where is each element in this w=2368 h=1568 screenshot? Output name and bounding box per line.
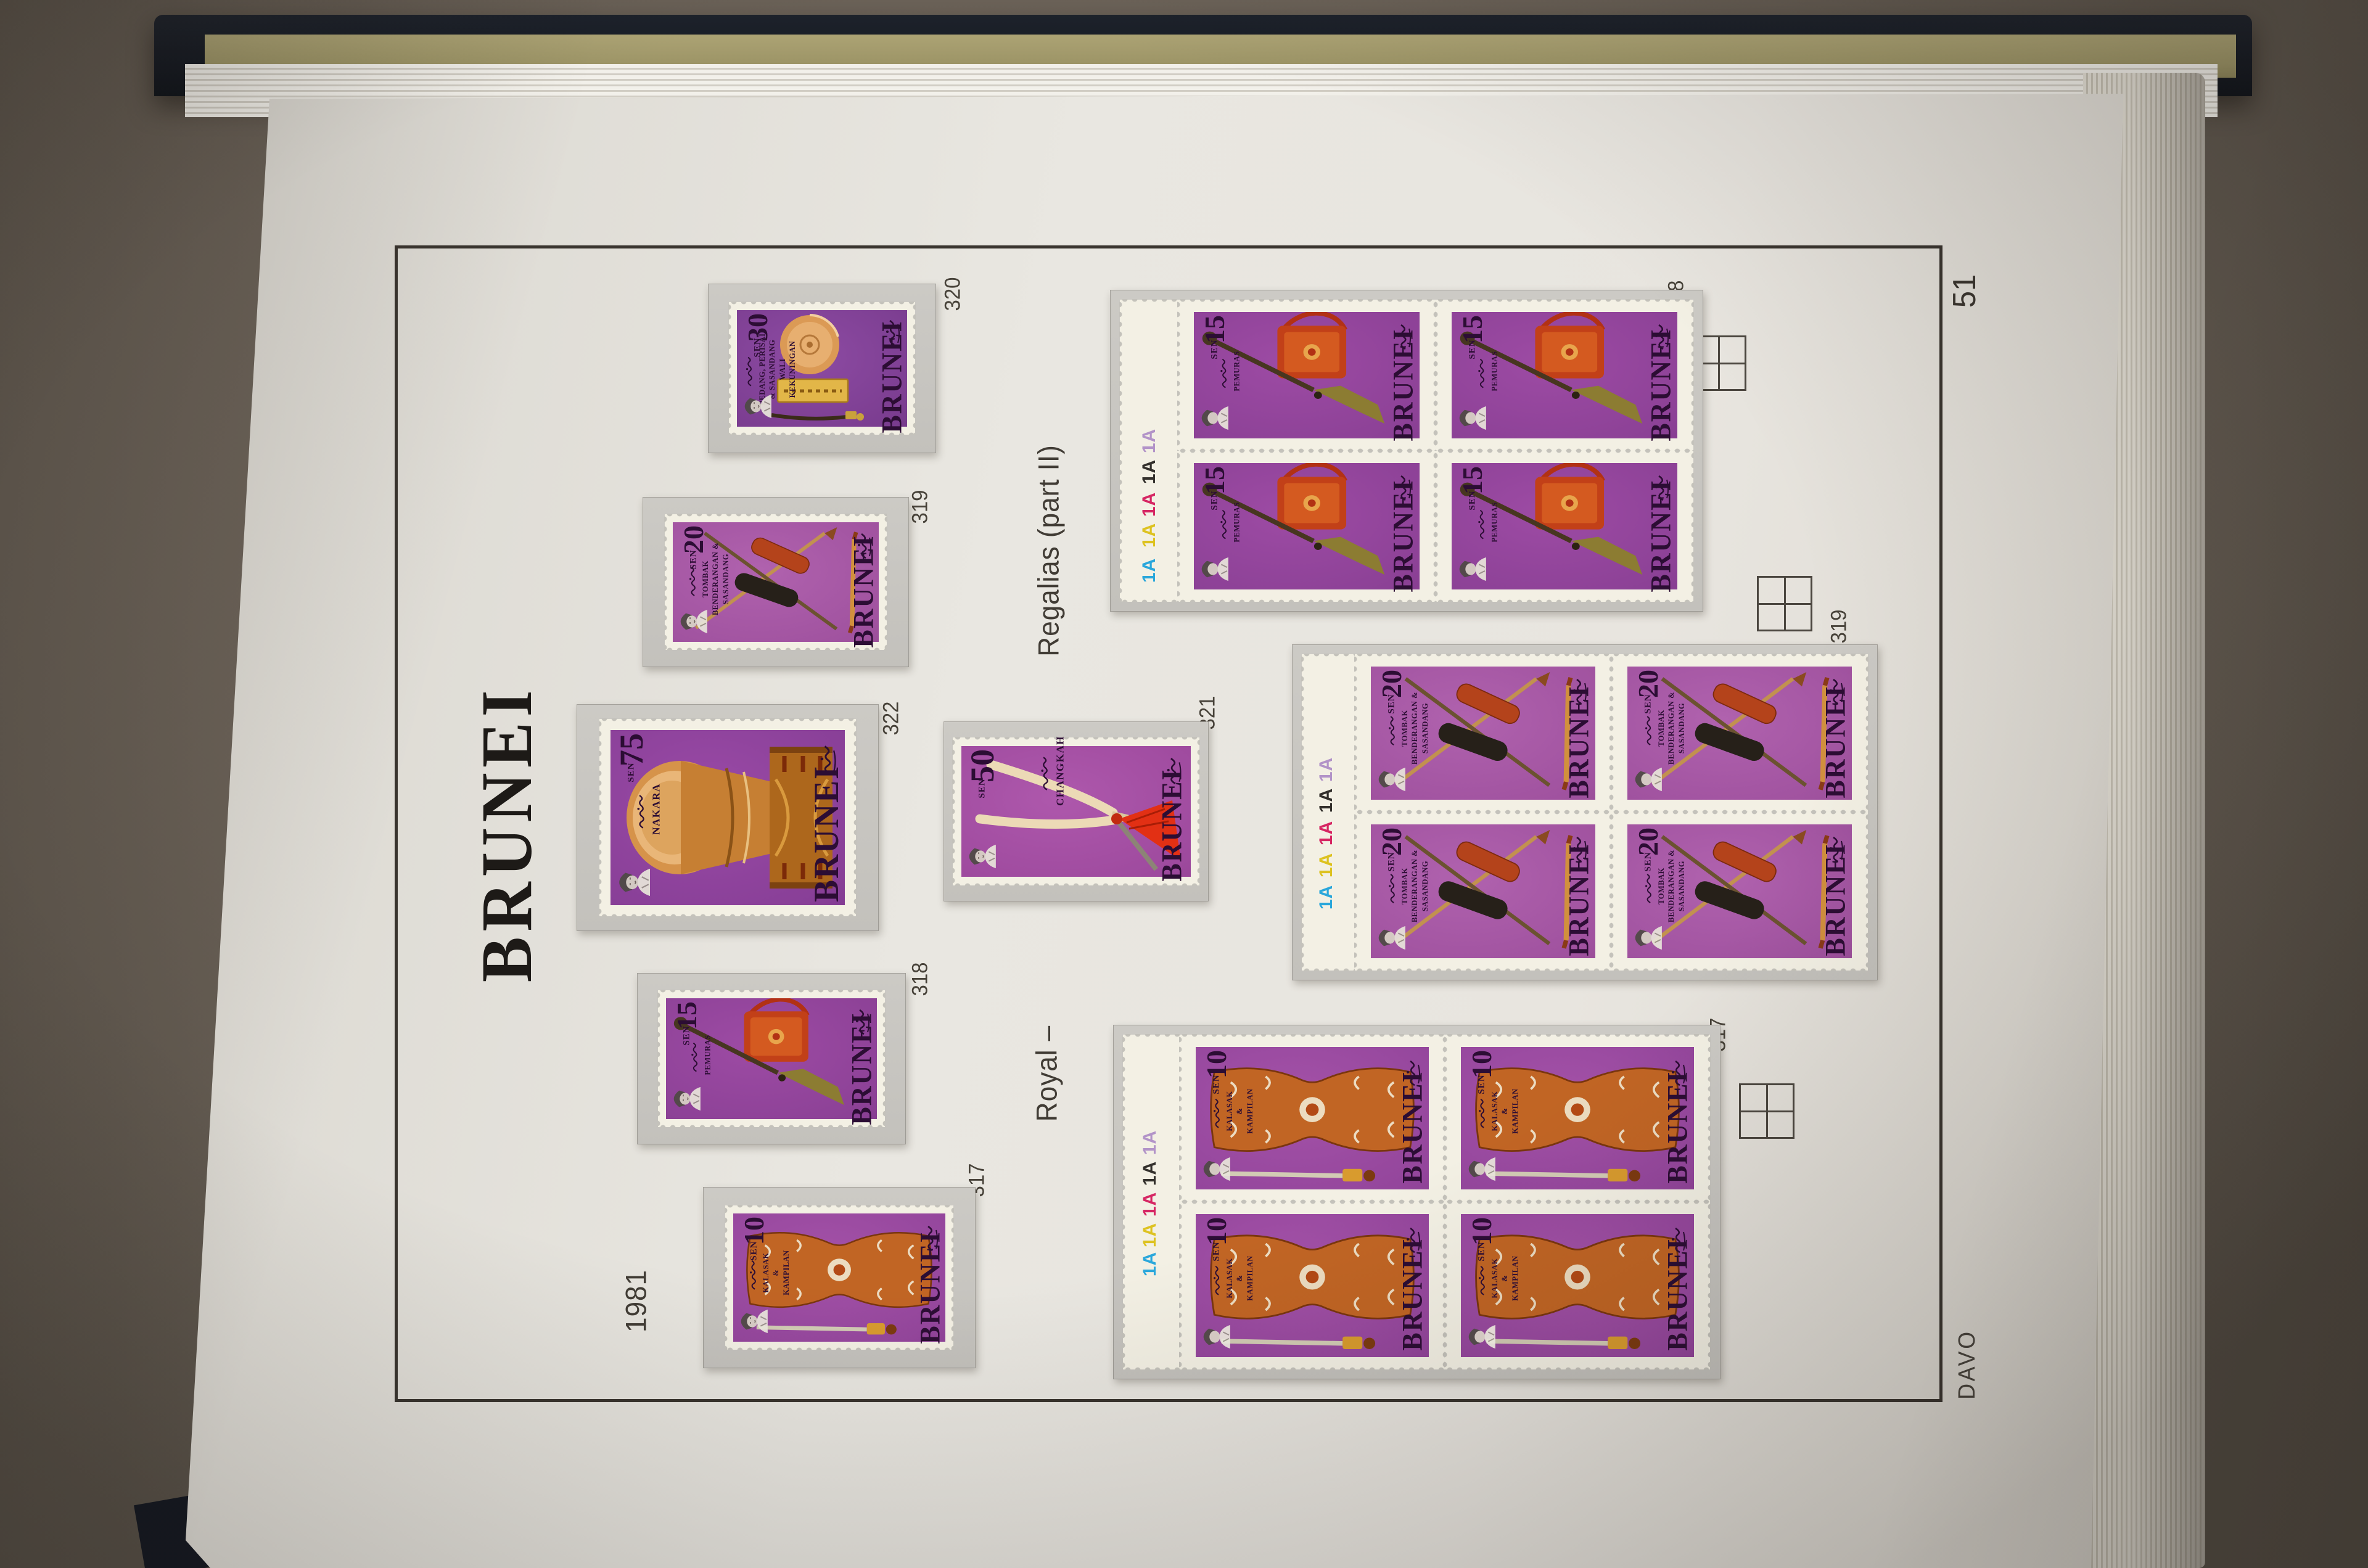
caption-line: BENDERANGAN & xyxy=(1410,692,1420,765)
block-stamp-319: 20SEN BRUNEI TOMBAKBENDERANGAN &SASANDAN… xyxy=(1355,812,1611,971)
stamp-mount: 15 SEN BRUNEI PEMURAS xyxy=(637,973,906,1144)
block-stamp-318: 15SEN BRUNEI PEMURAS xyxy=(1178,300,1436,451)
caption-line: SASANDANG xyxy=(1420,850,1430,922)
stamp-caption: PEMURAS xyxy=(691,1035,712,1075)
caption-line: TOMBAK xyxy=(1656,692,1666,765)
block-stamp-317: 10SEN BRUNEI KALASAK&KAMPILAN xyxy=(1445,1035,1710,1202)
caption-line: PEMURAS xyxy=(1489,351,1499,391)
block-mount: 1A 1A 1A 1A 1A 20SEN BRUNEI TOMBAKBENDER… xyxy=(1292,644,1878,980)
stamp-320-design: 30 SEN BRUNEI PEDANG, PERISAI & SASANDAN… xyxy=(737,310,907,427)
sultan-portrait xyxy=(738,392,771,421)
caption-line: & xyxy=(771,1250,781,1295)
block-mount: 1A 1A 1A 1A 1A 15SEN BRUNEI PEMURAS xyxy=(1110,290,1703,612)
stamp-mount: 20 SEN BRUNEI TOMBAK BENDERANGAN & SASAN… xyxy=(643,497,909,667)
plate-number-1A: 1A xyxy=(1317,853,1336,877)
block-stamp-317: 10SEN BRUNEI KALASAK&KAMPILAN xyxy=(1180,1202,1445,1369)
plate-number-1A: 1A xyxy=(1140,523,1159,548)
caption-line: KAMPILAN xyxy=(1510,1088,1520,1133)
brand-label: DAVO xyxy=(1955,1329,1979,1400)
stamp-mount: 10 SEN BRUNEI KALASAK & KAMPILAN xyxy=(703,1187,976,1368)
caption-line: WALI xyxy=(778,333,787,405)
stamp-318-design: 15 SEN BRUNEI PEMURAS xyxy=(666,998,877,1119)
stamp-319: 20 SEN BRUNEI TOMBAK BENDERANGAN & SASAN… xyxy=(665,514,887,650)
caption-line: & xyxy=(1500,1088,1510,1133)
catalog-number-319: 319 xyxy=(910,490,931,524)
sheet-selvage: 1A 1A 1A 1A 1A xyxy=(1302,654,1355,971)
sultan-portrait xyxy=(612,866,650,899)
caption-line: & xyxy=(1500,1255,1510,1300)
value-unit: SEN xyxy=(1468,490,1478,510)
arabic-script-icon xyxy=(857,532,871,560)
caption-line: TOMBAK xyxy=(1400,692,1410,765)
caption-line: KEKUNINGAN xyxy=(787,333,797,405)
arabic-script-icon xyxy=(885,318,900,347)
value-number: 75 xyxy=(615,733,648,766)
block-of-four-icon xyxy=(1757,576,1812,631)
plate-number-1A: 1A xyxy=(1141,1192,1159,1217)
plate-number-1A: 1A xyxy=(1141,1130,1159,1155)
caption-line: BENDERANGAN & xyxy=(710,543,720,615)
series-caption-lower: Royal – xyxy=(1032,1025,1061,1122)
value-unit: SEN xyxy=(1211,339,1220,359)
plate-number-1A: 1A xyxy=(1141,1161,1159,1186)
caption-line: TOMBAK xyxy=(1656,850,1666,922)
caption-line: PEMURAS xyxy=(1231,351,1241,391)
caption-line: KALASAK xyxy=(1225,1255,1235,1300)
stamp-country: BRUNEI xyxy=(809,765,844,902)
block-stamp-318: 15SEN BRUNEI PEMURAS xyxy=(1436,300,1693,451)
catalog-number-block-319: 319 xyxy=(1828,610,1850,644)
stamp-country: BRUNEI xyxy=(1399,1070,1427,1183)
caption-line: & xyxy=(1235,1088,1244,1133)
caption-line: PEMURAS xyxy=(1231,502,1241,542)
block-of-four-icon xyxy=(1739,1083,1794,1139)
caption-line: PEMURAS xyxy=(1489,502,1499,542)
arabic-script-icon xyxy=(819,744,836,776)
plate-number-1A: 1A xyxy=(1140,429,1159,453)
block-stamp-317: 10SEN BRUNEI KALASAK&KAMPILAN xyxy=(1445,1202,1710,1369)
caption-line: PEMURAS xyxy=(702,1035,712,1075)
plate-number-1A: 1A xyxy=(1140,459,1159,484)
value-unit: SEN xyxy=(1211,490,1220,510)
caption-line: SASANDANG xyxy=(1677,692,1687,765)
arabic-script-icon xyxy=(923,1224,938,1252)
stamp-318: 15 SEN BRUNEI PEMURAS xyxy=(658,990,885,1127)
stamp-317-design: 10 SEN BRUNEI KALASAK & KAMPILAN xyxy=(733,1213,945,1342)
stamp-317: 10 SEN BRUNEI KALASAK & KAMPILAN xyxy=(725,1205,953,1350)
plate-number-1A: 1A xyxy=(1317,821,1336,845)
stamp-322-design: 75 SEN BRUNEI NAKARA xyxy=(610,730,845,905)
stamp-caption: KALASAK & KAMPILAN xyxy=(749,1250,791,1295)
year-label: 1981 xyxy=(622,1270,651,1332)
caption-line: BENDERANGAN & xyxy=(1410,850,1420,922)
arabic-script-icon xyxy=(1165,756,1182,786)
caption-line: KALASAK xyxy=(761,1250,771,1295)
stamp-321-design: 50 SEN BRUNEI CHANGKAH xyxy=(961,746,1191,877)
stamp-caption: CHANGKAH xyxy=(1040,736,1067,806)
stamp-country: BRUNEI xyxy=(1399,1238,1427,1350)
caption-line: SASANDANG xyxy=(721,543,731,615)
sultan-portrait xyxy=(667,1085,701,1113)
caption-line: & xyxy=(1235,1255,1244,1300)
caption-line: NAKARA xyxy=(649,783,663,835)
stamp-mount: 75 SEN BRUNEI NAKARA xyxy=(577,704,879,931)
sultan-portrait xyxy=(734,1307,768,1336)
stamp-322: 75 SEN BRUNEI NAKARA xyxy=(599,719,856,916)
value-unit: SEN xyxy=(683,1025,692,1045)
stamp-321: 50 SEN BRUNEI CHANGKAH xyxy=(953,737,1199,885)
plate-number-1A: 1A xyxy=(1317,788,1336,813)
caption-line: KALASAK xyxy=(1490,1088,1500,1133)
photo-scene: BRUNEI Regalias (part II) Royal – 1981 5… xyxy=(0,0,2368,1568)
caption-line: SASANDANG xyxy=(1677,850,1687,922)
sultan-portrait xyxy=(674,607,707,636)
block-stamp-319: 20SEN BRUNEI TOMBAKBENDERANGAN &SASANDAN… xyxy=(1355,654,1611,812)
block-stamp-318: 15SEN BRUNEI PEMURAS xyxy=(1436,451,1693,602)
plate-number-1A: 1A xyxy=(1140,558,1159,583)
caption-line: SASANDANG xyxy=(1420,692,1430,765)
value-number: 50 xyxy=(966,749,999,782)
stamp-caption: TOMBAK BENDERANGAN & SASANDANG xyxy=(689,543,731,615)
caption-line: BENDERANGAN & xyxy=(1666,850,1676,922)
block-stamp-317: 10SEN BRUNEI KALASAK&KAMPILAN xyxy=(1180,1035,1445,1202)
catalog-number-320: 320 xyxy=(942,277,964,311)
sultan-portrait xyxy=(963,842,996,871)
plate-number-1A: 1A xyxy=(1140,492,1159,517)
stamp-318-design: 15SEN BRUNEI PEMURAS xyxy=(1194,312,1420,438)
block-stamp-318: 15SEN BRUNEI PEMURAS xyxy=(1178,451,1436,602)
page-title: BRUNEI xyxy=(471,685,543,982)
plate-number-1A: 1A xyxy=(1317,885,1336,909)
caption-line: KAMPILAN xyxy=(1245,1255,1255,1300)
block-319: 1A 1A 1A 1A 1A 20SEN BRUNEI TOMBAKBENDER… xyxy=(1302,654,1868,971)
caption-line: KAMPILAN xyxy=(1510,1255,1520,1300)
caption-line: KAMPILAN xyxy=(781,1250,791,1295)
arabic-script-icon xyxy=(855,1008,869,1036)
catalog-number-322: 322 xyxy=(881,702,902,736)
caption-line: KAMPILAN xyxy=(1245,1088,1255,1133)
value-unit: SEN xyxy=(978,778,987,798)
stamp-caption: NAKARA xyxy=(636,783,663,835)
value-unit: SEN xyxy=(627,762,636,782)
caption-line: TOMBAK xyxy=(701,543,710,615)
plate-number-1A: 1A xyxy=(1317,757,1336,782)
caption-line: TOMBAK xyxy=(1400,850,1410,922)
caption-line: KALASAK xyxy=(1490,1255,1500,1300)
stamp-country: BRUNEI xyxy=(1664,1070,1692,1183)
page-number: 51 xyxy=(1949,274,1981,308)
plate-number-1A: 1A xyxy=(1141,1223,1159,1247)
block-stamp-319: 20SEN BRUNEI TOMBAKBENDERANGAN &SASANDAN… xyxy=(1611,654,1868,812)
stamp-319-design: 20 SEN BRUNEI TOMBAK BENDERANGAN & SASAN… xyxy=(673,522,879,642)
stamp-320: 30 SEN BRUNEI PEDANG, PERISAI & SASANDAN… xyxy=(729,302,915,435)
block-317: 1A 1A 1A 1A 1A 10SEN BRUNEI KALASAK&KAMP… xyxy=(1123,1035,1711,1369)
series-caption-upper: Regalias (part II) xyxy=(1034,445,1063,656)
value-unit: SEN xyxy=(1468,339,1478,359)
sheet-selvage: 1A 1A 1A 1A 1A xyxy=(1123,1035,1180,1369)
sheet-selvage: 1A 1A 1A 1A 1A xyxy=(1120,300,1178,602)
caption-line: BENDERANGAN & xyxy=(1666,692,1676,765)
plate-number-1A: 1A xyxy=(1141,1252,1159,1276)
arabic-script-icon xyxy=(746,351,754,388)
caption-line: KALASAK xyxy=(1225,1088,1235,1133)
block-stamp-319: 20SEN BRUNEI TOMBAKBENDERANGAN &SASANDAN… xyxy=(1611,812,1868,971)
stamp-country: BRUNEI xyxy=(1664,1238,1692,1350)
block-mount: 1A 1A 1A 1A 1A 10SEN BRUNEI KALASAK&KAMP… xyxy=(1113,1025,1720,1379)
catalog-number-318: 318 xyxy=(910,963,931,996)
stamp-mount: 50 SEN BRUNEI CHANGKAH xyxy=(943,721,1209,901)
caption-line: CHANGKAH xyxy=(1053,736,1067,806)
stamp-mount: 30 SEN BRUNEI PEDANG, PERISAI & SASANDAN… xyxy=(708,284,936,453)
block-318: 1A 1A 1A 1A 1A 15SEN BRUNEI PEMURAS xyxy=(1120,300,1693,602)
